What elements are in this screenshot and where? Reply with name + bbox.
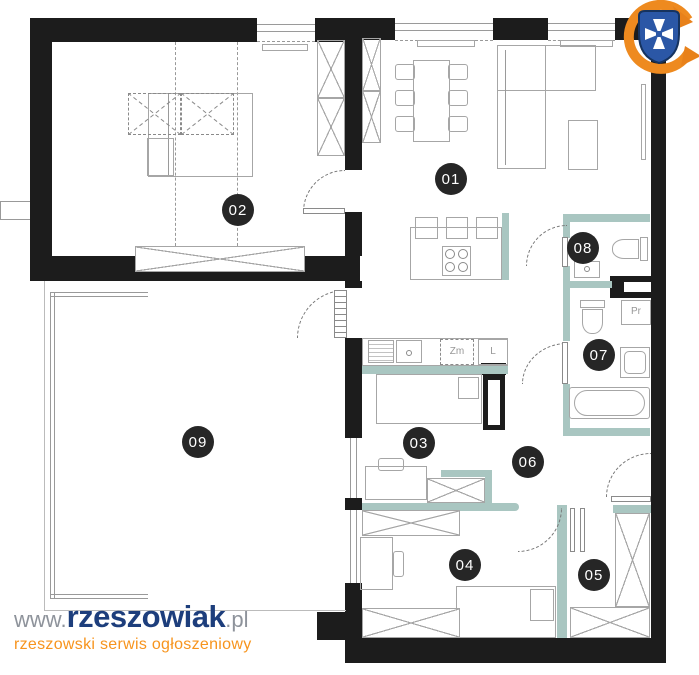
chair (395, 116, 415, 132)
shaft-outline (483, 375, 505, 430)
window-line (395, 30, 493, 31)
burner (458, 262, 468, 272)
partition-wc-bath (563, 281, 612, 288)
toilet-tank-bath (580, 300, 605, 308)
pillow-room03 (458, 377, 479, 399)
partition-bath-bottom (563, 428, 650, 436)
door-leaf-hall-east (611, 496, 651, 502)
toilet-bath (582, 309, 603, 334)
bathtub-inner (574, 390, 645, 416)
chair (395, 64, 415, 80)
window-terrace-a (0, 68, 17, 128)
door-leaf-room02 (303, 208, 345, 214)
toilet-tank-wc (640, 237, 648, 261)
wardrobe-room04-top (362, 510, 460, 536)
wardrobe-room02-a (317, 40, 345, 98)
partition-kitchen-room03 (362, 366, 508, 374)
wardrobe-room05-bottom (570, 607, 650, 638)
window-line (356, 438, 357, 498)
cabinet-room01-b (362, 91, 381, 143)
door-leaf-room05-a (570, 508, 575, 552)
window-line (395, 23, 493, 24)
room-badge-08: 08 (567, 232, 599, 264)
wardrobe-room02-b (317, 98, 345, 156)
desk-room04 (360, 537, 393, 590)
railing-top (50, 292, 148, 297)
branding: www.rzeszowiak.pl rzeszowski serwis ogło… (14, 601, 252, 653)
dining-table (413, 60, 450, 142)
door-arc-bathroom (522, 343, 567, 384)
wall-room02-room01-lower (345, 212, 362, 256)
url-tld: .pl (225, 607, 248, 632)
desk-chair-room04 (393, 551, 404, 577)
tagline: rzeszowski serwis ogłoszeniowy (14, 637, 252, 653)
burner (445, 249, 455, 259)
dishwasher-label: Zm (440, 346, 474, 357)
faucet (406, 350, 412, 356)
wall-terrace-top-stub (345, 281, 362, 288)
door-leaf-room05-b (580, 508, 585, 552)
partition-room03-closet-side (485, 470, 492, 510)
wall-bottom (345, 638, 666, 663)
partition-room05-top (613, 505, 651, 513)
wardrobe-room05-side (615, 513, 650, 607)
washer-label: Pr (621, 306, 651, 317)
door-arc-room04 (518, 508, 562, 552)
toilet-wc (612, 239, 639, 259)
window-sill (262, 44, 308, 51)
door-leaf-bathroom (562, 342, 568, 384)
window-sill (417, 40, 475, 47)
rzeszow-crest-logo (615, 0, 699, 82)
sofa-line (505, 50, 506, 165)
floor-plan: Zm L Pr 01 02 03 04 05 06 07 08 09 www.r… (0, 0, 699, 675)
pillow-room04 (530, 589, 554, 621)
window-dash (257, 41, 315, 42)
door-arc-hall-east (606, 453, 651, 497)
window-line (548, 23, 615, 24)
wall-room02-room01-upper (345, 18, 362, 170)
window-line (350, 438, 351, 498)
room-badge-04: 04 (449, 549, 481, 581)
partition-hall-c (563, 288, 570, 341)
terrace-edge-left (44, 281, 45, 611)
roof-window-x-lines (128, 93, 234, 135)
window-line (257, 24, 315, 25)
site-url: www.rzeszowiak.pl (14, 601, 252, 632)
railing-vertical (50, 292, 55, 599)
chair (448, 116, 468, 132)
window-line (257, 31, 315, 32)
room-badge-07: 07 (583, 339, 615, 371)
wardrobe-room03 (427, 478, 485, 503)
logo-arrow-bottom (681, 46, 699, 66)
room-badge-06: 06 (512, 446, 544, 478)
window-terrace-b (0, 128, 17, 201)
partition-wc-top (563, 214, 650, 222)
kitchen-cabinet (415, 217, 438, 239)
wall-top-room01-b (493, 18, 548, 40)
chair (395, 90, 415, 106)
cabinet-room01-a (362, 38, 381, 91)
duct-right-notch (624, 282, 651, 292)
wardrobe-room04-bottom (362, 608, 460, 638)
door-arc-wc (526, 225, 567, 266)
wall-terrace-mid (345, 338, 362, 438)
wall-left (30, 18, 52, 281)
url-www: www. (14, 607, 67, 632)
wall-top-room01-a (362, 18, 395, 40)
coffee-table (568, 120, 598, 170)
chair (448, 90, 468, 106)
url-sitename: rzeszowiak (67, 599, 226, 634)
room-badge-02: 02 (222, 194, 254, 226)
armchair-room02 (147, 138, 174, 176)
desk-room03 (365, 466, 427, 500)
wall-terrace-pier (345, 498, 362, 510)
washbasin-bowl (624, 351, 646, 374)
partition-kitchen (502, 213, 509, 280)
basin-drain (584, 266, 590, 272)
radiator (641, 84, 646, 160)
room-badge-01: 01 (435, 163, 467, 195)
window-line (356, 510, 357, 583)
wall-top-room02 (30, 18, 257, 42)
wall-bottom-left-corner (317, 612, 362, 640)
door-leaf-terrace (334, 290, 347, 338)
desk-chair-room03 (378, 458, 404, 471)
room-badge-09: 09 (182, 426, 214, 458)
sill-cabinet-room02 (135, 246, 305, 272)
kitchen-cabinet (446, 217, 468, 239)
fridge-label: L (478, 346, 508, 357)
burner (445, 262, 455, 272)
kitchen-cabinet (476, 217, 498, 239)
chair (448, 64, 468, 80)
window-line (548, 30, 615, 31)
burner (458, 249, 468, 259)
room-badge-05: 05 (578, 559, 610, 591)
drainer (368, 340, 394, 363)
wall-right (651, 28, 666, 645)
window-line (350, 510, 351, 583)
room-badge-03: 03 (403, 427, 435, 459)
door-arc-room02 (303, 170, 345, 212)
